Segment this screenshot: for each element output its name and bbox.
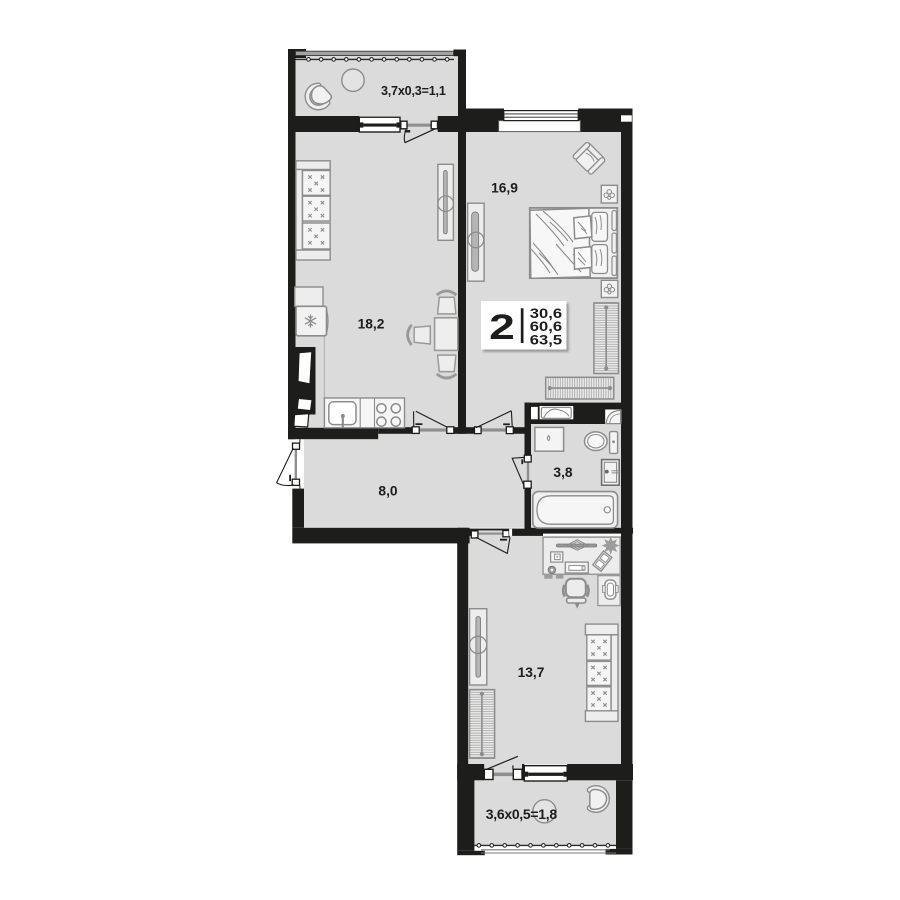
svg-text:3,6x0,5=1,8: 3,6x0,5=1,8: [486, 806, 558, 822]
svg-text:13,7: 13,7: [518, 665, 545, 680]
svg-text:18,2: 18,2: [358, 316, 385, 331]
svg-text:16,9: 16,9: [491, 181, 518, 196]
svg-text:8,0: 8,0: [378, 483, 398, 498]
svg-text:63,5: 63,5: [530, 333, 562, 348]
svg-text:3,8: 3,8: [553, 465, 573, 480]
svg-text:3,7x0,3=1,1: 3,7x0,3=1,1: [381, 84, 446, 98]
svg-text:2: 2: [489, 307, 515, 346]
